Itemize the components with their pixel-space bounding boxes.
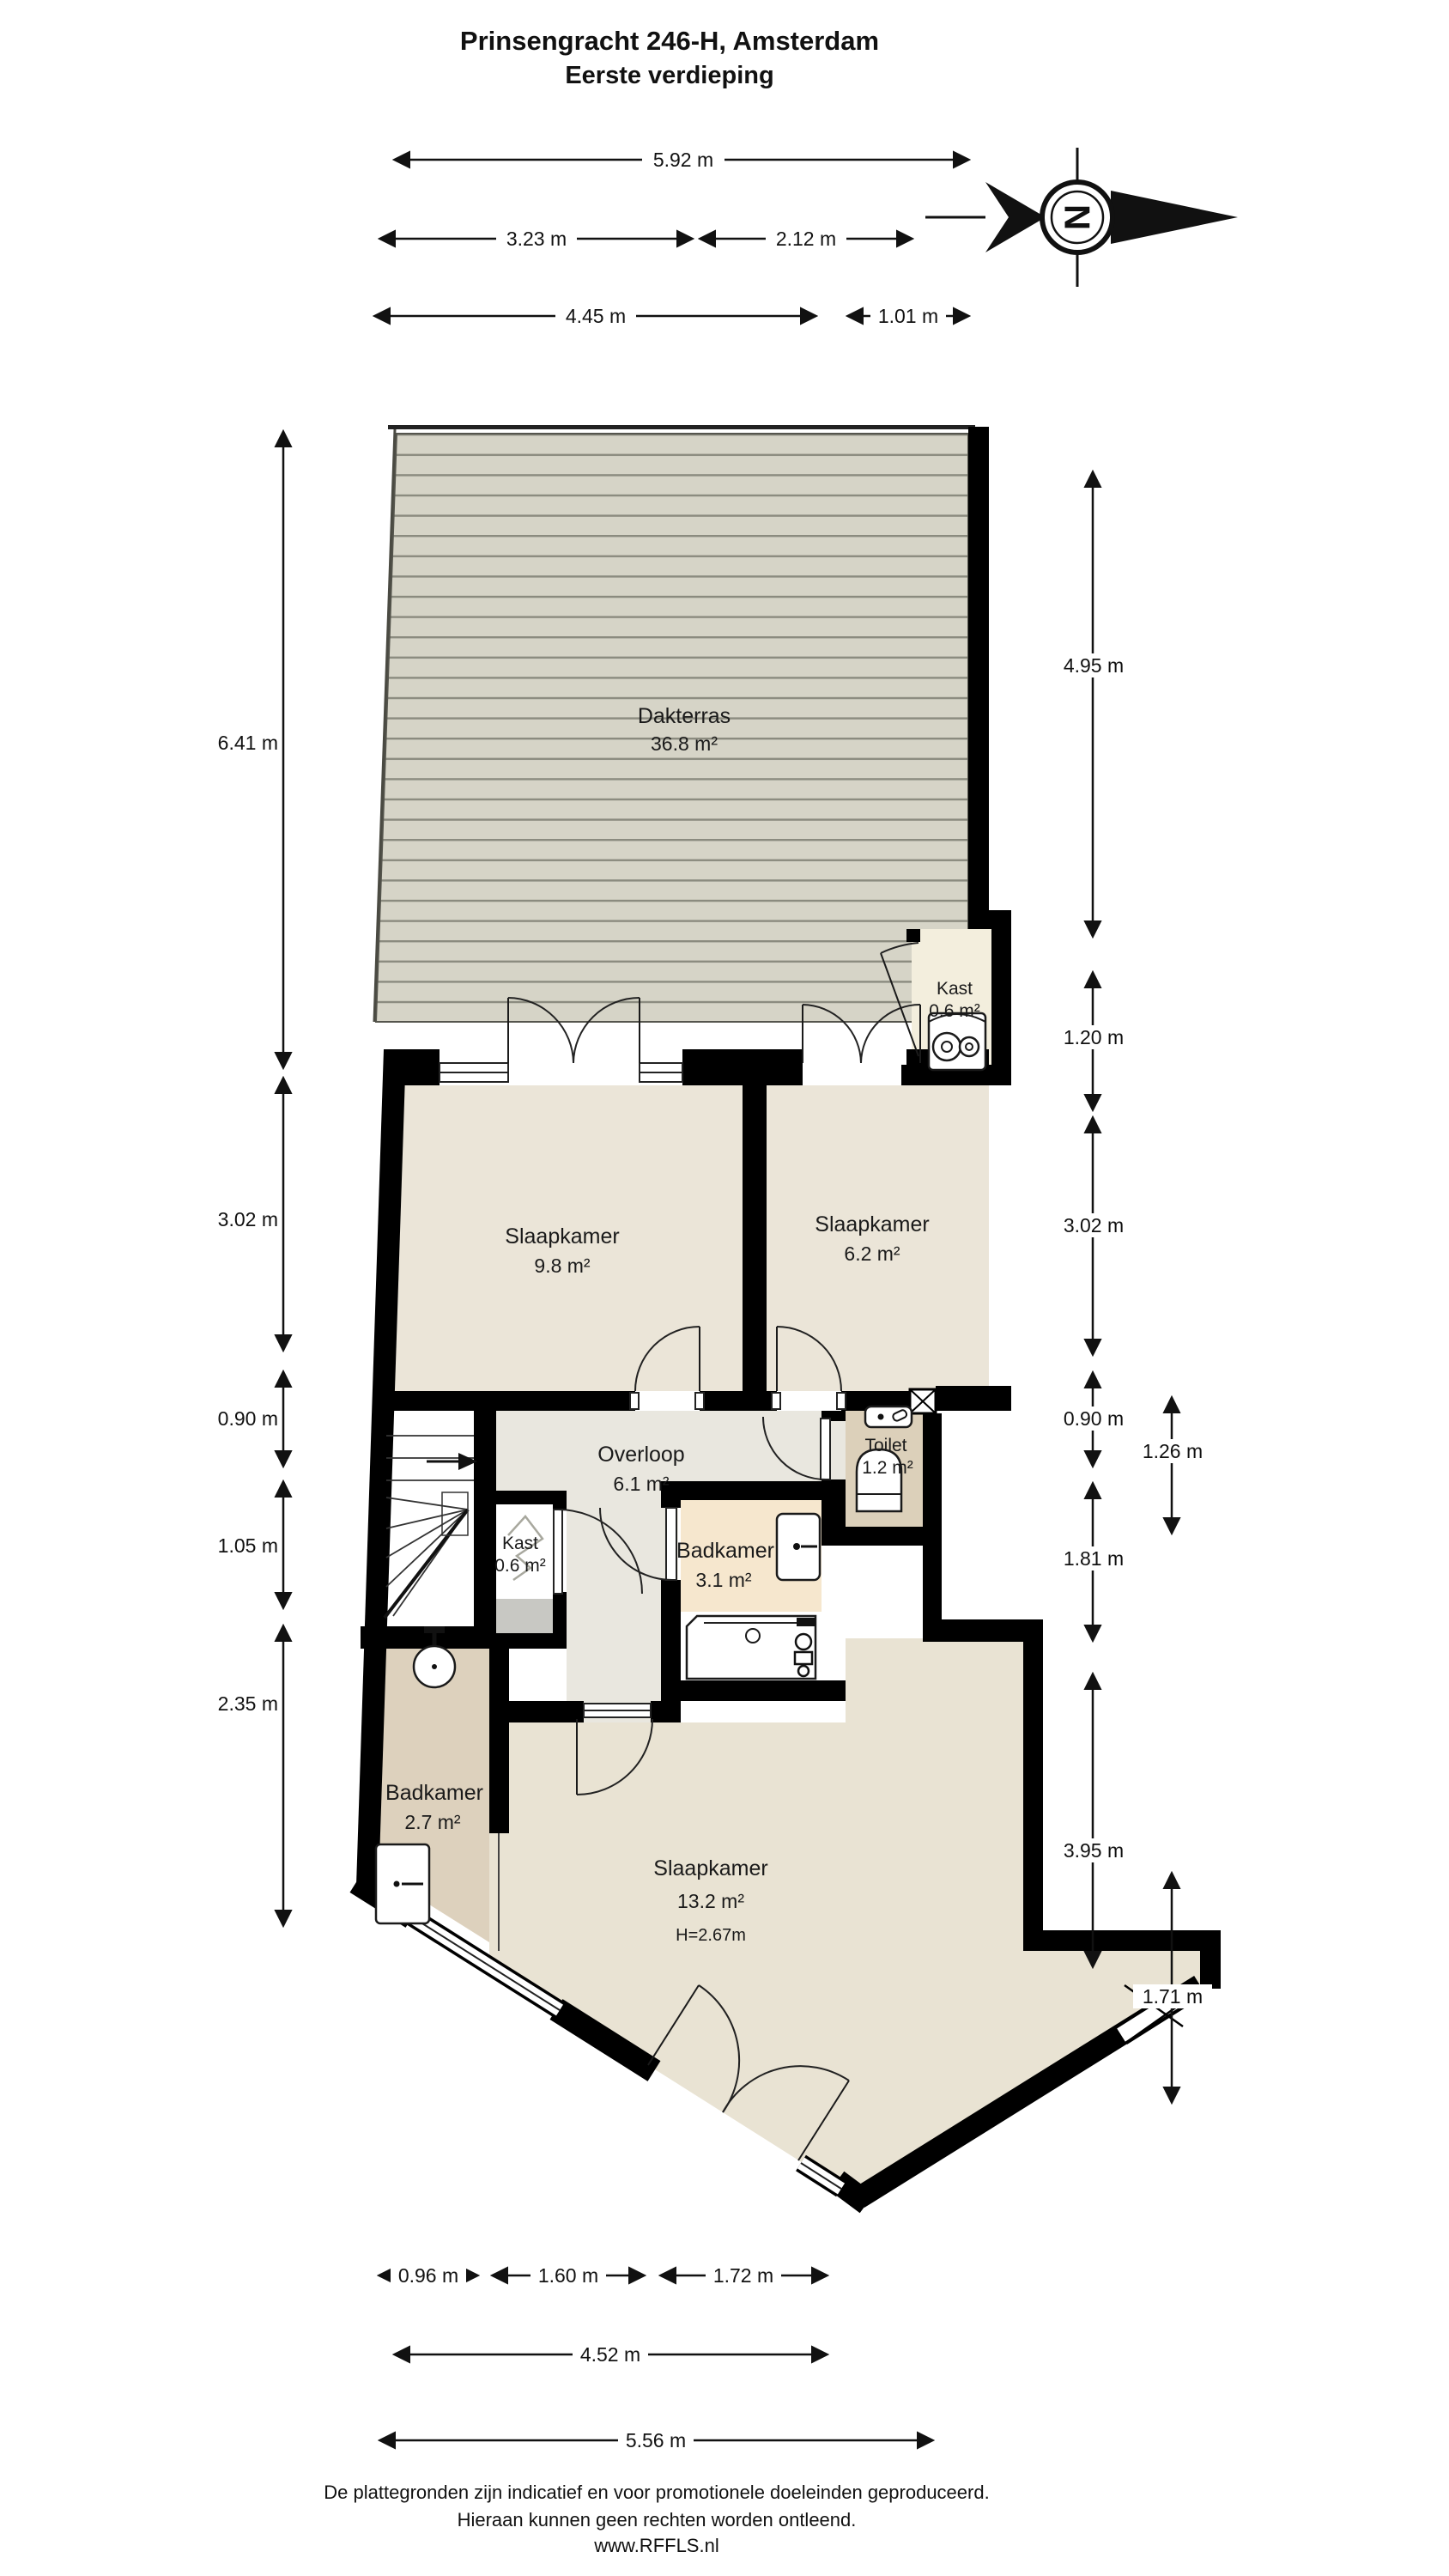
room-height: H=2.67m xyxy=(676,1926,746,1945)
window-terrace-mid xyxy=(640,1063,682,1082)
room-area: 13.2 m² xyxy=(677,1890,744,1912)
dim-label: 0.90 m xyxy=(1064,1407,1124,1430)
title-line1: Prinsengracht 246-H, Amsterdam xyxy=(460,26,879,56)
dimension-lines-right: 4.95 m 1.20 m 3.02 m 0.90 m 1.26 m 1.81 … xyxy=(1054,472,1212,2102)
dim-bottom-2: 1.72 m xyxy=(661,2263,827,2287)
dim-label: 2.35 m xyxy=(218,1692,278,1715)
room-area: 1.2 m² xyxy=(862,1458,913,1478)
dim-bottom-1: 1.60 m xyxy=(493,2263,644,2287)
dim-left-4: 2.35 m xyxy=(204,1626,283,1925)
floorplan-page: Prinsengracht 246-H, Amsterdam Eerste ve… xyxy=(0,0,1449,2576)
dim-label: 4.95 m xyxy=(1064,654,1124,677)
room-name: Badkamer xyxy=(385,1781,483,1805)
dim-right-7: 1.71 m xyxy=(1133,1874,1212,2102)
dim-label: 3.02 m xyxy=(218,1208,278,1230)
footer-website: www.RFFLS.nl xyxy=(593,2535,718,2556)
room-area: 6.1 m² xyxy=(613,1473,670,1495)
room-name: Slaapkamer xyxy=(505,1224,619,1249)
dim-label: 4.45 m xyxy=(566,305,626,327)
compass-north-icon: N xyxy=(925,148,1238,287)
room-area: 0.6 m² xyxy=(929,1001,980,1021)
room-name: Kast xyxy=(937,979,973,999)
dim-top-2: 2.12 m xyxy=(700,227,912,251)
dimension-lines-left: 6.41 m 3.02 m 0.90 m 1.05 m 2.35 m xyxy=(204,432,283,1925)
dim-label: 1.81 m xyxy=(1064,1547,1124,1570)
dim-right-1: 1.20 m xyxy=(1054,973,1133,1109)
footer-line2: Hieraan kunnen geen rechten worden ontle… xyxy=(458,2509,857,2530)
boiler-icon xyxy=(929,1013,985,1070)
dim-left-1: 3.02 m xyxy=(204,1078,283,1350)
bedrooms-floor xyxy=(386,1085,989,1391)
void-space xyxy=(846,1546,929,1621)
wall-terrace-right xyxy=(968,427,989,929)
room-name: Dakterras xyxy=(638,704,731,728)
room-name: Slaapkamer xyxy=(815,1212,929,1236)
dim-label: 5.92 m xyxy=(653,149,713,171)
dimension-lines-top: 5.92 m 3.23 m 2.12 m 4.45 m 1.01 m xyxy=(375,148,968,328)
dim-label: 1.60 m xyxy=(538,2264,598,2287)
dim-bottom-0: 0.96 m xyxy=(379,2263,477,2287)
dim-label: 1.26 m xyxy=(1143,1440,1203,1462)
dimension-lines-bottom: 0.96 m 1.60 m 1.72 m 4.52 m 5.56 m xyxy=(379,2263,932,2452)
dim-right-4: 1.26 m xyxy=(1133,1398,1212,1533)
room-name: Overloop xyxy=(597,1443,684,1467)
title-line2: Eerste verdieping xyxy=(565,62,773,89)
dim-right-5: 1.81 m xyxy=(1054,1484,1133,1640)
room-area: 0.6 m² xyxy=(494,1556,546,1576)
dim-top-1: 3.23 m xyxy=(380,227,692,251)
window-terrace-left xyxy=(440,1063,508,1082)
dim-label: 1.01 m xyxy=(878,305,938,327)
dim-label: 0.96 m xyxy=(398,2264,458,2287)
room-area: 6.2 m² xyxy=(844,1242,900,1265)
room-area: 2.7 m² xyxy=(404,1811,461,1833)
room-area: 3.1 m² xyxy=(695,1569,752,1591)
dim-top-3: 4.45 m xyxy=(375,304,815,328)
room-area: 36.8 m² xyxy=(651,732,718,755)
washbasin2-icon xyxy=(376,1844,429,1923)
bathtub-icon xyxy=(687,1616,815,1679)
dim-label: 1.05 m xyxy=(218,1534,278,1557)
dim-label: 1.71 m xyxy=(1143,1985,1203,2008)
dim-label: 1.20 m xyxy=(1064,1026,1124,1048)
dim-top-4: 1.01 m xyxy=(848,304,968,328)
room-name: Kast xyxy=(502,1534,538,1553)
toilet-sink-icon xyxy=(865,1406,912,1427)
page-title: Prinsengracht 246-H, Amsterdam Eerste ve… xyxy=(460,26,879,89)
closet-lower-shelf xyxy=(496,1599,556,1636)
footer-disclaimer: De plattegronden zijn indicatief en voor… xyxy=(324,2482,989,2556)
dim-label: 3.95 m xyxy=(1064,1839,1124,1862)
room-name: Badkamer xyxy=(676,1539,774,1563)
room-name: Slaapkamer xyxy=(653,1856,767,1880)
dim-left-0: 6.41 m xyxy=(204,432,283,1067)
dim-label: 4.52 m xyxy=(580,2343,640,2366)
dim-label: 2.12 m xyxy=(776,228,836,250)
dim-top-0: 5.92 m xyxy=(395,148,968,172)
room-area: 9.8 m² xyxy=(534,1255,591,1277)
window-toilet-x xyxy=(910,1389,936,1413)
dim-left-2: 0.90 m xyxy=(204,1372,283,1466)
dim-bottom-3: 4.52 m xyxy=(395,2342,827,2366)
dim-label: 1.72 m xyxy=(713,2264,773,2287)
dim-left-3: 1.05 m xyxy=(204,1482,283,1607)
dim-right-2: 3.02 m xyxy=(1054,1118,1133,1354)
compass-letter: N xyxy=(1058,204,1098,230)
dim-bottom-4: 5.56 m xyxy=(380,2428,932,2452)
footer-line1: De plattegronden zijn indicatief en voor… xyxy=(324,2482,989,2503)
washbasin1-icon xyxy=(777,1514,820,1580)
dim-label: 6.41 m xyxy=(218,732,278,754)
dim-label: 3.02 m xyxy=(1064,1214,1124,1236)
room-name: Toilet xyxy=(864,1436,906,1455)
wall-bedroom-divider xyxy=(743,1085,767,1391)
dim-label: 3.23 m xyxy=(506,228,567,250)
dim-right-0: 4.95 m xyxy=(1054,472,1133,936)
dim-right-6: 3.95 m xyxy=(1054,1674,1133,1966)
dim-label: 0.90 m xyxy=(218,1407,278,1430)
floorplan-canvas: Prinsengracht 246-H, Amsterdam Eerste ve… xyxy=(0,0,1449,2576)
dim-right-3: 0.90 m xyxy=(1054,1373,1133,1466)
dim-label: 5.56 m xyxy=(626,2429,686,2451)
